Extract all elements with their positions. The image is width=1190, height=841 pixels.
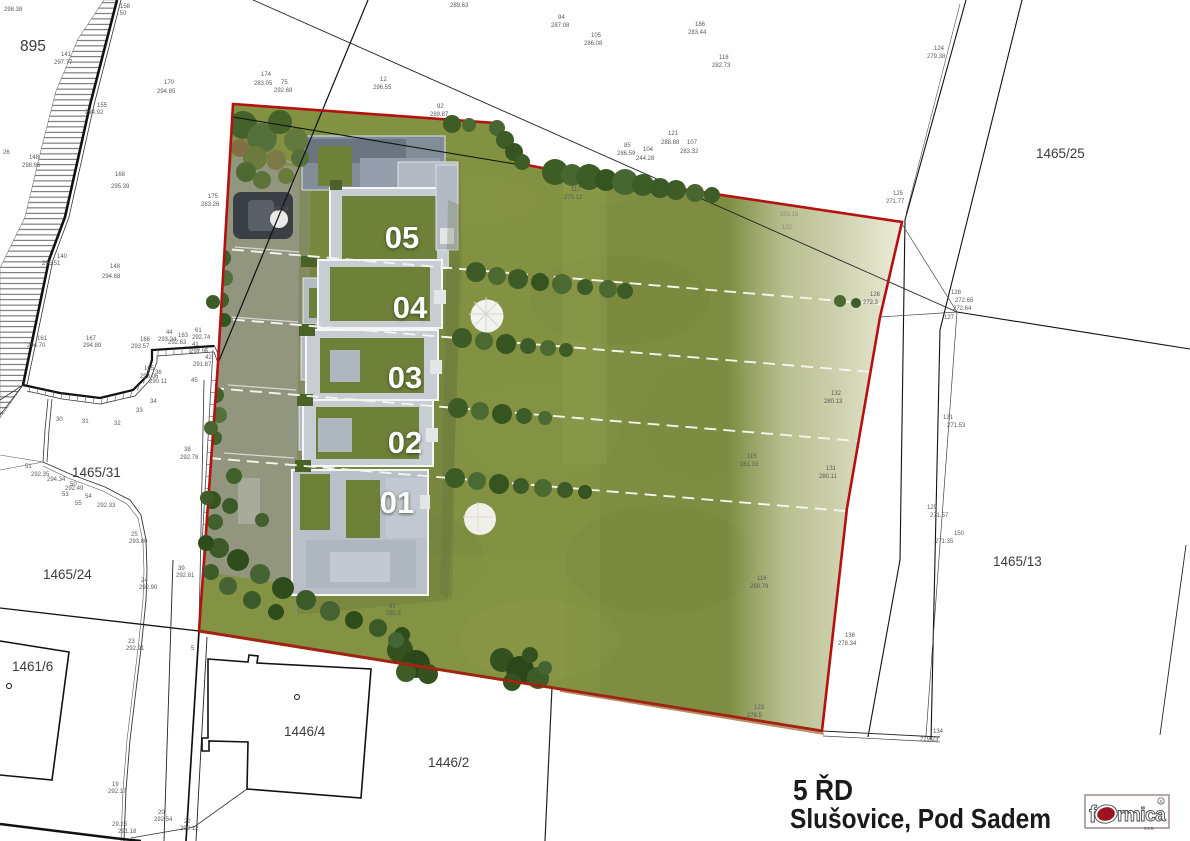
svg-text:298.38: 298.38: [4, 7, 23, 13]
svg-text:280.11: 280.11: [819, 474, 838, 480]
svg-text:283.05: 283.05: [254, 81, 273, 87]
svg-text:140: 140: [57, 254, 68, 260]
svg-text:298.96: 298.96: [22, 163, 41, 169]
svg-text:1465/24: 1465/24: [43, 567, 92, 582]
svg-text:22: 22: [184, 819, 191, 825]
svg-text:150: 150: [954, 531, 965, 537]
svg-text:34: 34: [150, 399, 157, 405]
svg-text:12: 12: [380, 77, 387, 83]
svg-text:123: 123: [754, 705, 765, 711]
svg-text:54: 54: [85, 494, 92, 500]
svg-text:53: 53: [62, 492, 69, 498]
svg-text:129: 129: [927, 505, 938, 511]
svg-text:131: 131: [826, 466, 837, 472]
svg-text:02: 02: [388, 425, 422, 460]
svg-text:294.92: 294.92: [85, 110, 104, 116]
svg-text:293.57: 293.57: [131, 344, 150, 350]
svg-text:292.5: 292.5: [386, 611, 402, 617]
svg-text:175: 175: [208, 194, 219, 200]
svg-text:271.57: 271.57: [930, 513, 949, 519]
svg-text:92: 92: [437, 104, 444, 110]
svg-text:297.77: 297.77: [54, 60, 73, 66]
svg-text:5 ŘD: 5 ŘD: [793, 773, 853, 807]
svg-text:292.63: 292.63: [168, 340, 187, 346]
svg-text:1461/6: 1461/6: [12, 659, 53, 674]
svg-text:290.12: 290.12: [180, 826, 199, 832]
svg-text:26: 26: [3, 150, 10, 156]
svg-text:148: 148: [110, 264, 121, 270]
svg-text:292.81: 292.81: [176, 573, 195, 579]
svg-text:229.23: 229.23: [920, 737, 939, 743]
svg-text:283.26: 283.26: [201, 202, 220, 208]
svg-text:296.55: 296.55: [373, 85, 392, 91]
svg-text:1465/25: 1465/25: [1036, 146, 1085, 161]
svg-text:253.16: 253.16: [780, 212, 799, 218]
svg-text:168: 168: [115, 172, 126, 178]
svg-text:121: 121: [668, 131, 679, 137]
svg-text:286.59: 286.59: [617, 151, 636, 157]
svg-text:05: 05: [385, 220, 419, 255]
svg-text:186: 186: [695, 22, 706, 28]
svg-text:272.64: 272.64: [953, 306, 972, 312]
svg-text:161: 161: [37, 336, 48, 342]
svg-text:38: 38: [184, 447, 191, 453]
svg-text:291.87: 291.87: [193, 362, 212, 368]
svg-text:23: 23: [128, 639, 135, 645]
svg-text:45: 45: [191, 378, 198, 384]
svg-text:296.51: 296.51: [42, 261, 61, 267]
svg-text:167: 167: [86, 336, 97, 342]
svg-text:1465/31: 1465/31: [72, 465, 121, 480]
svg-text:170: 170: [164, 80, 175, 86]
svg-text:287.08: 287.08: [551, 23, 570, 29]
svg-text:269.79: 269.79: [750, 584, 769, 590]
svg-text:294.85: 294.85: [157, 89, 176, 95]
svg-text:132: 132: [831, 391, 842, 397]
svg-text:39: 39: [178, 566, 185, 572]
svg-text:293.80: 293.80: [129, 539, 148, 545]
svg-text:294.68: 294.68: [102, 274, 121, 280]
svg-text:1465/13: 1465/13: [993, 554, 1042, 569]
svg-text:Slušovice, Pod Sadem: Slušovice, Pod Sadem: [790, 803, 1051, 834]
svg-text:134: 134: [933, 729, 944, 735]
svg-text:292.78: 292.78: [180, 455, 199, 461]
svg-text:19: 19: [112, 782, 119, 788]
svg-text:01: 01: [380, 485, 414, 520]
svg-text:41: 41: [192, 342, 199, 348]
svg-text:271.35: 271.35: [935, 539, 954, 545]
svg-text:166: 166: [140, 337, 151, 343]
svg-text:85: 85: [624, 143, 631, 149]
svg-text:279.38: 279.38: [927, 54, 946, 60]
svg-text:30: 30: [56, 417, 63, 423]
svg-text:44: 44: [166, 330, 173, 336]
svg-text:117: 117: [571, 187, 581, 193]
svg-text:105: 105: [591, 33, 602, 39]
svg-text:155: 155: [97, 103, 108, 109]
svg-text:272.3: 272.3: [863, 300, 879, 306]
svg-text:55: 55: [75, 501, 82, 507]
svg-text:278.34: 278.34: [838, 641, 857, 647]
svg-text:118: 118: [719, 55, 729, 61]
svg-text:94: 94: [558, 15, 565, 21]
svg-text:282.73: 282.73: [712, 63, 731, 69]
svg-text:141: 141: [61, 52, 72, 58]
svg-text:294.89: 294.89: [83, 343, 102, 349]
svg-text:126: 126: [870, 292, 881, 298]
svg-text:148: 148: [29, 155, 40, 161]
svg-text:03: 03: [388, 360, 422, 395]
svg-text:29.25: 29.25: [112, 822, 128, 828]
svg-text:165: 165: [144, 366, 155, 372]
svg-text:125: 125: [893, 191, 904, 197]
svg-text:294.34: 294.34: [47, 477, 66, 483]
svg-text:31: 31: [82, 419, 89, 425]
svg-text:292.17: 292.17: [108, 789, 127, 795]
svg-text:s.r.o.: s.r.o.: [1144, 826, 1155, 831]
svg-text:292.33: 292.33: [97, 503, 116, 509]
svg-text:289.87: 289.87: [430, 112, 449, 118]
svg-text:291.18: 291.18: [118, 829, 137, 835]
svg-text:283.32: 283.32: [680, 149, 699, 155]
svg-text:244.28: 244.28: [636, 156, 655, 162]
svg-text:292.91: 292.91: [126, 646, 145, 652]
svg-text:20: 20: [158, 810, 165, 816]
svg-text:290.11: 290.11: [149, 379, 168, 385]
svg-text:25: 25: [131, 532, 138, 538]
svg-text:91: 91: [389, 604, 396, 610]
svg-text:280.13: 280.13: [824, 399, 843, 405]
svg-text:107: 107: [687, 140, 698, 146]
svg-text:158: 158: [120, 4, 131, 10]
svg-text:128: 128: [951, 290, 962, 296]
svg-text:104: 104: [643, 147, 654, 153]
svg-text:32: 32: [114, 421, 121, 427]
svg-text:124: 124: [934, 46, 945, 52]
svg-text:272.65: 272.65: [955, 298, 974, 304]
svg-text:281.33: 281.33: [740, 462, 759, 468]
svg-text:292.16: 292.16: [270, 207, 289, 213]
svg-text:271.77: 271.77: [886, 199, 905, 205]
svg-text:115: 115: [747, 454, 757, 460]
svg-text:51: 51: [25, 464, 32, 470]
svg-text:131: 131: [943, 415, 954, 421]
svg-text:271.53: 271.53: [947, 423, 966, 429]
svg-text:278.5: 278.5: [747, 713, 763, 719]
svg-text:295.39: 295.39: [111, 184, 130, 190]
svg-text:rmica: rmica: [1117, 805, 1166, 826]
svg-text:1446/2: 1446/2: [428, 755, 469, 770]
svg-text:289.63: 289.63: [450, 3, 469, 9]
svg-text:294.70: 294.70: [27, 343, 46, 349]
svg-text:286.08: 286.08: [584, 41, 603, 47]
svg-text:.50: .50: [118, 11, 127, 17]
svg-text:292.90: 292.90: [139, 585, 158, 591]
svg-text:75: 75: [281, 80, 288, 86]
svg-text:36: 36: [155, 370, 162, 376]
svg-text:174: 174: [261, 72, 272, 78]
svg-text:24: 24: [141, 578, 148, 584]
svg-text:895: 895: [20, 38, 46, 55]
svg-text:288.88: 288.88: [661, 140, 680, 146]
svg-text:292.68: 292.68: [274, 88, 293, 94]
svg-text:136: 136: [845, 633, 856, 639]
svg-text:122: 122: [782, 225, 793, 231]
svg-text:292.49: 292.49: [65, 486, 84, 492]
svg-text:292.54: 292.54: [154, 817, 173, 823]
svg-text:04: 04: [393, 290, 428, 325]
svg-text:61: 61: [195, 328, 202, 334]
svg-text:1446/4: 1446/4: [284, 724, 326, 739]
svg-text:163: 163: [178, 333, 189, 339]
svg-text:42: 42: [205, 355, 212, 361]
svg-text:127: 127: [944, 315, 955, 321]
svg-text:283.44: 283.44: [688, 30, 707, 36]
svg-text:116: 116: [757, 576, 767, 582]
svg-text:279.12: 279.12: [564, 195, 583, 201]
svg-text:292.74: 292.74: [192, 335, 211, 341]
svg-text:33: 33: [136, 408, 143, 414]
